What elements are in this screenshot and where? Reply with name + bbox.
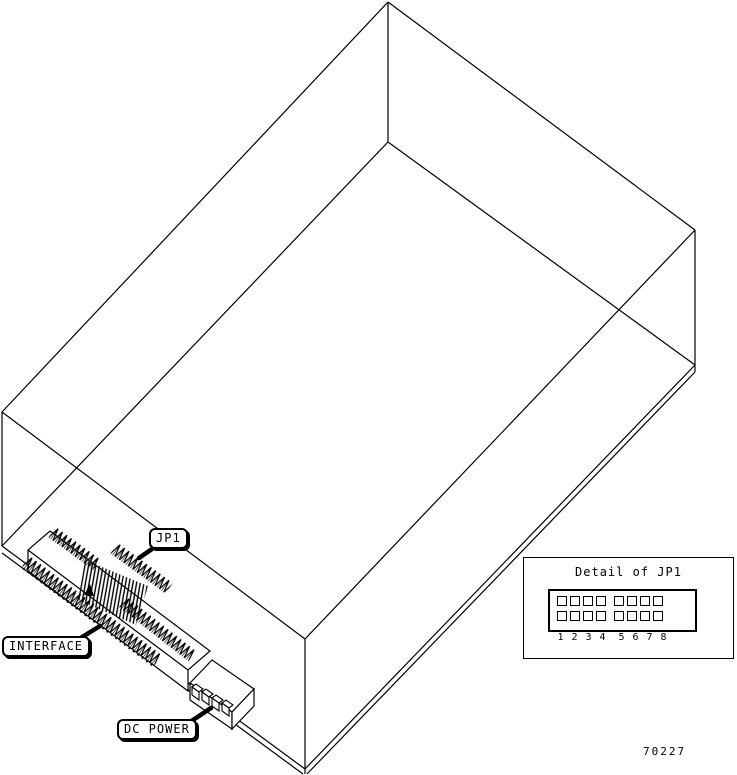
figure-canvas: JP1 INTERFACE DC POWER Detail of JP1 1 2… <box>0 0 737 775</box>
jumper-pin-cell <box>614 596 624 606</box>
jumper-pin-cell <box>653 596 663 606</box>
jumper-pin-cell <box>627 611 637 621</box>
jumper-pin-cell <box>583 611 593 621</box>
jumper-pin-row-top <box>557 596 695 606</box>
pin-number: 3 <box>583 632 594 644</box>
dc-power-callout-label: DC POWER <box>117 719 197 740</box>
jumper-pin-cell <box>614 611 624 621</box>
jumper-pin-cell <box>640 596 650 606</box>
jumper-pin-cell <box>653 611 663 621</box>
jumper-pin-row-bottom <box>557 611 695 621</box>
pin-number: 5 <box>616 632 627 644</box>
jumper-pin-cell <box>557 611 567 621</box>
pin-number: 8 <box>658 632 669 644</box>
pin-number: 2 <box>569 632 580 644</box>
jp1-tail <box>139 549 152 558</box>
jumper-pin-cell <box>640 611 650 621</box>
jp1-jumper-block-diagram <box>548 589 697 632</box>
figure-number: 70227 <box>643 745 686 758</box>
bottom-face-edges <box>2 142 695 769</box>
dc-power-connector <box>190 660 254 729</box>
top-face-edges <box>2 2 695 639</box>
pin-number: 4 <box>597 632 608 644</box>
jumper-pin-cell <box>570 611 580 621</box>
jumper-pin-cell <box>596 611 606 621</box>
jp1-detail-inset: Detail of JP1 1 2 3 4 5 6 7 8 <box>523 557 734 659</box>
inset-title: Detail of JP1 <box>524 565 733 579</box>
jumper-pin-cell <box>570 596 580 606</box>
pin-number: 6 <box>630 632 641 644</box>
jumper-pin-cell <box>596 596 606 606</box>
pin-number: 7 <box>644 632 655 644</box>
pin-number: 1 <box>555 632 566 644</box>
interface-callout-label: INTERFACE <box>2 636 90 657</box>
jumper-pin-cell <box>627 596 637 606</box>
jumper-pin-cell <box>583 596 593 606</box>
jumper-pin-cell <box>557 596 567 606</box>
jumper-pin-numbers: 1 2 3 4 5 6 7 8 <box>555 632 672 644</box>
jp1-callout-label: JP1 <box>149 528 188 549</box>
